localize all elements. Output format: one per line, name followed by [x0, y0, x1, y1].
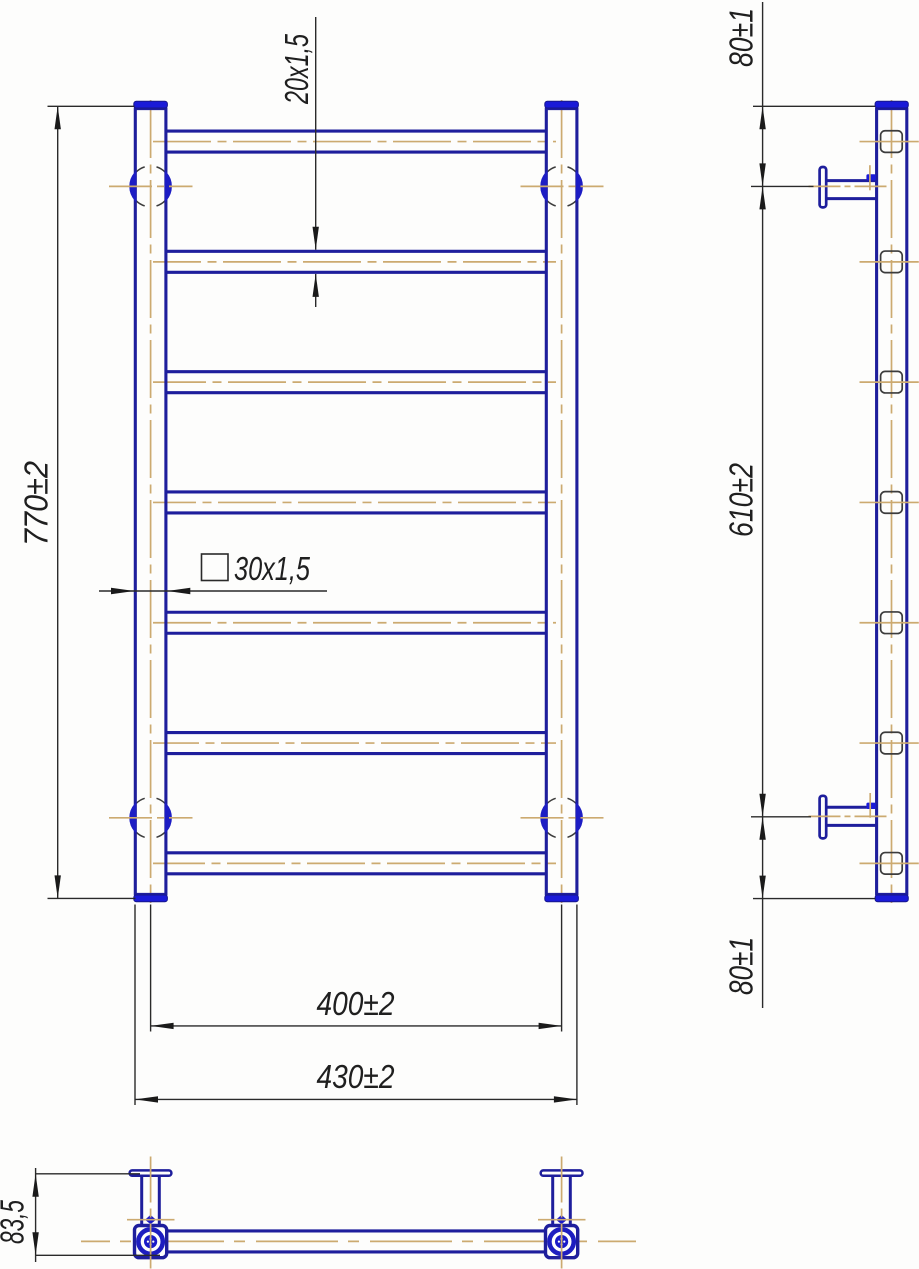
svg-text:83,5: 83,5 — [0, 1200, 31, 1244]
svg-text:20x1,5: 20x1,5 — [278, 34, 315, 105]
svg-text:80±1: 80±1 — [723, 8, 760, 67]
svg-text:400±2: 400±2 — [317, 985, 395, 1022]
svg-text:610±2: 610±2 — [723, 463, 760, 537]
svg-text:30x1,5: 30x1,5 — [234, 550, 310, 587]
svg-text:430±2: 430±2 — [317, 1058, 395, 1095]
svg-text:770±2: 770±2 — [18, 461, 55, 546]
svg-text:80±1: 80±1 — [723, 937, 760, 995]
